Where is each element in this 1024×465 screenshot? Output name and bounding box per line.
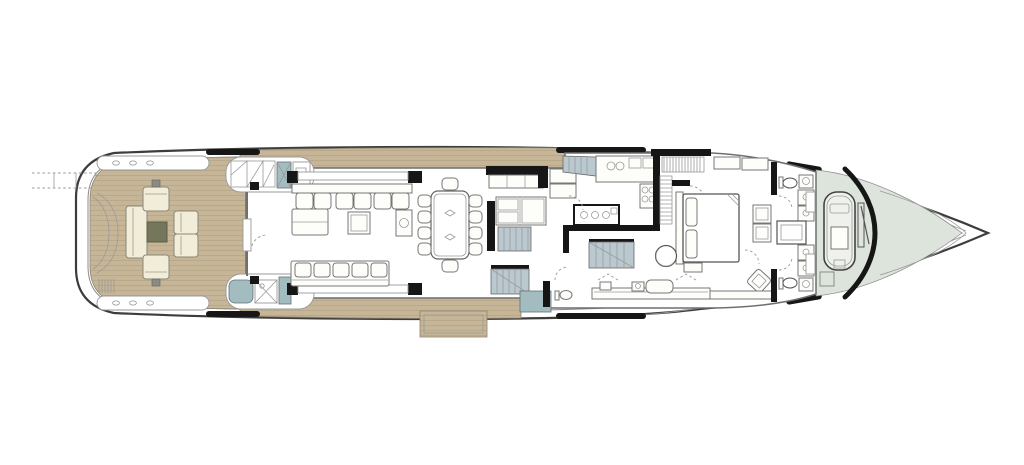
tender-console	[831, 227, 848, 249]
stair-edge	[589, 239, 634, 242]
tender	[824, 192, 855, 270]
caprail-strip	[206, 311, 260, 317]
pillow	[686, 198, 697, 226]
dining-chair	[469, 211, 482, 223]
sink-counter	[596, 156, 656, 182]
wc-bowl	[783, 178, 797, 188]
galley-wall	[563, 225, 660, 231]
foot-bench	[684, 263, 702, 272]
dining-chair	[418, 195, 431, 207]
window-mullion	[408, 171, 422, 183]
wardrobe-partition	[672, 180, 690, 186]
master-bed	[676, 192, 739, 264]
refrigerator	[538, 166, 548, 188]
bed-headboard	[676, 192, 683, 264]
tall-unit	[550, 184, 576, 198]
side-table	[152, 279, 160, 286]
cabin-fwd-wall	[771, 162, 777, 195]
cabin-fwd-wall	[771, 269, 777, 302]
aft-deck-club-chair	[174, 211, 198, 234]
crane-post	[858, 203, 864, 247]
cushion	[295, 263, 311, 277]
side-table	[152, 180, 160, 187]
deck-plan-drawing	[0, 0, 1024, 465]
dining-chair	[469, 195, 482, 207]
cushion	[314, 263, 330, 277]
sofa-back	[292, 184, 412, 193]
caprail-strip	[206, 149, 260, 155]
pillow	[686, 230, 697, 258]
wc-tank	[555, 291, 559, 300]
window-mullion	[408, 283, 422, 295]
sideboard-top	[486, 166, 546, 175]
wall-corner	[250, 276, 259, 284]
head-wall	[543, 281, 550, 307]
caprail-strip	[556, 147, 646, 153]
wc-bowl	[560, 291, 572, 300]
washbasin-cabinet	[799, 278, 813, 291]
entry-stair-edge	[491, 265, 529, 269]
headboard-shelf	[714, 157, 740, 169]
cushion	[336, 193, 353, 209]
dining-chair	[418, 243, 431, 255]
dining-chair	[469, 227, 482, 239]
dining-table	[431, 191, 469, 259]
stairs-down	[498, 227, 531, 251]
wall-corner	[250, 182, 259, 190]
dining-chair	[442, 178, 458, 190]
dining-chair	[418, 227, 431, 239]
window-sill	[298, 172, 408, 180]
vanity-console	[710, 291, 772, 299]
galley-wall	[563, 225, 569, 253]
dining-chair	[469, 243, 482, 255]
window-mullion	[287, 171, 298, 183]
aft-deck-teak	[90, 157, 246, 309]
aft-deck-sofa	[126, 206, 147, 258]
dining-chair	[442, 260, 458, 272]
wardrobe-wall	[651, 149, 711, 156]
yacht-main-deck-plan	[0, 0, 1024, 465]
cushion	[371, 263, 387, 277]
cushion	[392, 193, 409, 209]
cushion	[374, 193, 391, 209]
sliding-door	[243, 219, 251, 251]
locker	[229, 280, 253, 303]
lobby-wall	[487, 201, 495, 251]
caprail-strip	[556, 313, 646, 319]
aft-deck-club-chair	[174, 234, 198, 257]
washbasin-cabinet	[799, 175, 813, 188]
cushion	[314, 193, 331, 209]
wc-tank	[779, 177, 783, 188]
dining-chair	[418, 211, 431, 223]
deck-hatch	[806, 254, 815, 274]
deck-hatch	[806, 192, 815, 212]
lobby-settee	[496, 197, 546, 225]
headboard-shelf	[742, 158, 768, 170]
salon-sofa-port	[291, 261, 389, 286]
console-table	[600, 282, 611, 290]
cushion	[354, 193, 371, 209]
foredeck	[816, 169, 966, 297]
aft-deck	[90, 156, 246, 310]
aft-deck-armchair-top	[143, 187, 169, 211]
wc-bowl	[783, 278, 797, 288]
cushion	[333, 263, 349, 277]
sofa-side-table	[396, 210, 412, 236]
wardrobe-wall	[653, 151, 660, 230]
sideboard	[489, 175, 543, 188]
console-seat	[646, 280, 673, 293]
cushion	[296, 193, 313, 209]
crew-stairs	[563, 156, 596, 176]
cushion	[352, 263, 368, 277]
aft-deck-coffee-table	[147, 222, 167, 242]
aft-deck-armchair-bottom	[143, 255, 169, 279]
wc-tank	[779, 278, 783, 289]
